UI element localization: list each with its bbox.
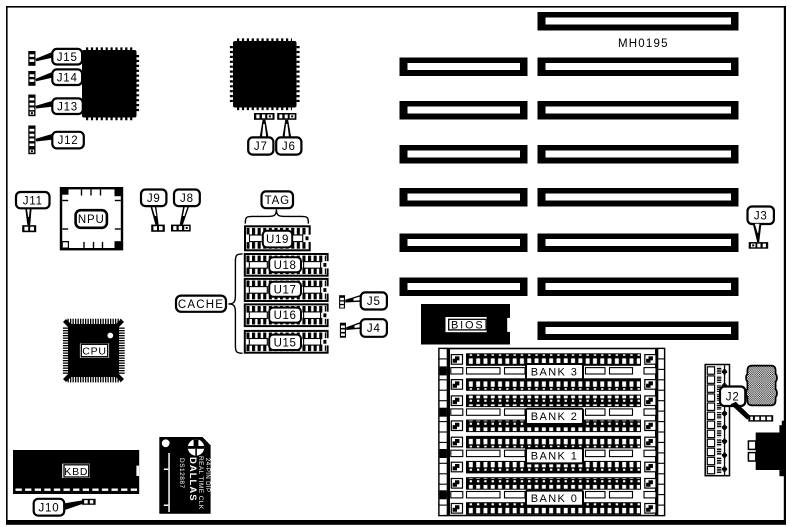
svg-text:J5: J5 (367, 296, 381, 308)
svg-text:J10: J10 (38, 502, 59, 514)
svg-text:U15: U15 (274, 337, 297, 349)
svg-text:CPU: CPU (82, 345, 107, 357)
svg-text:J3: J3 (754, 210, 768, 222)
svg-text:24-PIN DIP: 24-PIN DIP (204, 458, 210, 492)
svg-text:BANK 3: BANK 3 (531, 366, 579, 378)
svg-text:U18: U18 (274, 260, 297, 272)
svg-text:REAL TIME CLK: REAL TIME CLK (197, 456, 204, 510)
svg-text:TAG: TAG (265, 195, 290, 207)
svg-text:BIOS: BIOS (451, 320, 485, 332)
svg-text:DS12887: DS12887 (178, 458, 185, 489)
svg-text:J7: J7 (254, 141, 268, 153)
svg-text:BANK 0: BANK 0 (531, 493, 579, 505)
svg-text:KBD: KBD (64, 466, 88, 478)
svg-text:J8: J8 (180, 193, 194, 205)
svg-text:J15: J15 (57, 52, 78, 64)
svg-text:J14: J14 (57, 72, 78, 84)
svg-text:J12: J12 (58, 135, 79, 147)
svg-text:BANK 2: BANK 2 (531, 411, 579, 423)
svg-text:J13: J13 (57, 101, 78, 113)
svg-text:J4: J4 (367, 323, 381, 335)
svg-text:MH0195: MH0195 (618, 38, 669, 50)
svg-text:U19: U19 (266, 234, 289, 246)
svg-text:CACHE: CACHE (178, 299, 224, 311)
svg-text:DALLAS: DALLAS (187, 457, 198, 502)
svg-text:J2: J2 (726, 391, 740, 403)
svg-text:J9: J9 (147, 193, 161, 205)
svg-text:U16: U16 (274, 310, 297, 322)
svg-text:J6: J6 (282, 141, 296, 153)
svg-text:NPU: NPU (78, 214, 105, 226)
svg-text:BANK 1: BANK 1 (531, 451, 579, 463)
svg-text:U17: U17 (274, 284, 297, 296)
svg-text:J11: J11 (23, 195, 43, 207)
